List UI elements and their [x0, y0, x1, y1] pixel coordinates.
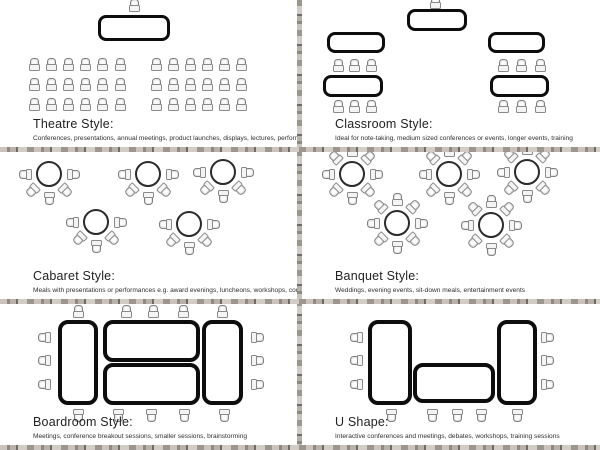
chair-icon — [251, 379, 264, 390]
chair-icon — [63, 98, 74, 111]
seating-styles-sheet: Theatre Style: Conferences, presentation… — [0, 0, 600, 450]
chair-icon — [73, 305, 84, 318]
chair-icon — [499, 200, 516, 217]
ushape-caption: U Shape: Interactive conferences and mee… — [335, 415, 560, 443]
chair-icon — [486, 195, 497, 208]
chair-icon — [333, 100, 344, 113]
chair-icon — [24, 182, 41, 199]
chair-icon — [91, 240, 102, 253]
chair-icon — [372, 198, 389, 215]
chair-icon — [516, 59, 527, 72]
chair-icon — [151, 78, 162, 91]
chair-icon — [424, 152, 441, 166]
chair-icon — [499, 233, 516, 250]
table — [103, 363, 200, 405]
round-table — [83, 209, 109, 235]
chair-icon — [347, 192, 358, 205]
chair-icon — [121, 305, 132, 318]
round-table — [210, 159, 236, 185]
chair-icon — [71, 230, 88, 247]
chair-icon — [322, 169, 335, 180]
chair-icon — [166, 169, 179, 180]
round-table — [176, 211, 202, 237]
panel-description: Ideal for note-taking, medium sized conf… — [335, 135, 573, 143]
chair-icon — [97, 78, 108, 91]
chair-icon — [516, 100, 527, 113]
chair-icon — [198, 180, 215, 197]
chair-icon — [392, 241, 403, 254]
chair-icon — [502, 180, 519, 197]
chair-icon — [522, 190, 533, 203]
chair-icon — [535, 59, 546, 72]
chair-icon — [80, 78, 91, 91]
chair-icon — [424, 182, 441, 199]
chair-icon — [405, 231, 422, 248]
chair-icon — [115, 98, 126, 111]
chair-icon — [444, 192, 455, 205]
chair-icon — [444, 152, 455, 157]
chair-icon — [366, 100, 377, 113]
chair-icon — [168, 78, 179, 91]
panel-theatre-style: Theatre Style: Conferences, presentation… — [0, 0, 297, 147]
chair-icon — [46, 98, 57, 111]
chair-icon — [156, 182, 173, 199]
chair-icon — [466, 233, 483, 250]
chair-icon — [415, 218, 428, 229]
chair-icon — [350, 355, 363, 366]
table — [488, 32, 545, 53]
chair-icon — [251, 332, 264, 343]
table — [413, 363, 495, 403]
panel-description: Conferences, presentations, annual meeti… — [33, 135, 297, 143]
chair-icon — [350, 332, 363, 343]
panel-cabaret-style: Cabaret Style: Meals with presentations … — [0, 152, 297, 299]
chair-icon — [184, 242, 195, 255]
chair-icon — [115, 58, 126, 71]
chair-icon — [123, 182, 140, 199]
chair-icon — [67, 169, 80, 180]
chair-icon — [197, 232, 214, 249]
chair-icon — [467, 169, 480, 180]
table — [497, 320, 537, 405]
chair-icon — [350, 379, 363, 390]
table — [323, 75, 383, 97]
chair-icon — [522, 152, 533, 155]
chair-icon — [236, 98, 247, 111]
chair-icon — [19, 169, 32, 180]
round-table — [36, 161, 62, 187]
chair-icon — [63, 78, 74, 91]
chair-icon — [367, 218, 380, 229]
panel-title: Classroom Style: — [335, 117, 573, 131]
chair-icon — [115, 78, 126, 91]
horizontal-divider-1 — [0, 147, 600, 152]
vertical-divider — [297, 0, 302, 450]
chair-icon — [168, 58, 179, 71]
chair-icon — [46, 78, 57, 91]
chair-icon — [535, 180, 552, 197]
chair-icon — [457, 152, 474, 166]
chair-icon — [498, 59, 509, 72]
chair-icon — [219, 58, 230, 71]
panel-title: Banquet Style: — [335, 269, 525, 283]
chair-icon — [193, 167, 206, 178]
cabaret-caption: Cabaret Style: Meals with presentations … — [33, 269, 297, 297]
chair-icon — [430, 0, 441, 9]
chair-icon — [457, 182, 474, 199]
theatre-caption: Theatre Style: Conferences, presentation… — [33, 117, 297, 145]
chair-icon — [29, 98, 40, 111]
horizontal-divider-2 — [0, 299, 600, 304]
panel-banquet-style: Banquet Style: Weddings, evening events,… — [302, 152, 600, 299]
round-table — [384, 210, 410, 236]
chair-icon — [347, 152, 358, 157]
panel-title: U Shape: — [335, 415, 560, 429]
chair-icon — [44, 192, 55, 205]
chair-icon — [231, 180, 248, 197]
chair-icon — [333, 59, 344, 72]
chair-icon — [185, 58, 196, 71]
panel-boardroom-style: Boardroom Style: Meetings, conference br… — [0, 304, 297, 445]
panel-title: Boardroom Style: — [33, 415, 247, 429]
panel-description: Weddings, evening events, sit-down meals… — [335, 287, 525, 295]
chair-icon — [419, 169, 432, 180]
chair-icon — [497, 167, 510, 178]
chair-icon — [207, 219, 220, 230]
panel-title: Theatre Style: — [33, 117, 297, 131]
chair-icon — [38, 332, 51, 343]
chair-icon — [541, 332, 554, 343]
chair-icon — [118, 169, 131, 180]
chair-icon — [185, 78, 196, 91]
chair-icon — [97, 98, 108, 111]
chair-icon — [461, 220, 474, 231]
chair-icon — [392, 193, 403, 206]
panel-description: Meetings, conference breakout sessions, … — [33, 433, 247, 441]
classroom-caption: Classroom Style: Ideal for note-taking, … — [335, 117, 573, 145]
chair-icon — [148, 305, 159, 318]
chair-icon — [349, 59, 360, 72]
chair-icon — [151, 58, 162, 71]
chair-icon — [202, 98, 213, 111]
banquet-caption: Banquet Style: Weddings, evening events,… — [335, 269, 525, 297]
chair-icon — [80, 58, 91, 71]
chair-icon — [66, 217, 79, 228]
round-table — [514, 159, 540, 185]
round-table — [436, 161, 462, 187]
chair-icon — [327, 152, 344, 166]
table — [202, 320, 243, 405]
chair-icon — [372, 231, 389, 248]
chair-icon — [405, 198, 422, 215]
chair-icon — [57, 182, 74, 199]
chair-icon — [466, 200, 483, 217]
panel-description: Interactive conferences and meetings, de… — [335, 433, 560, 441]
chair-icon — [217, 305, 228, 318]
chair-icon — [498, 100, 509, 113]
chair-icon — [143, 192, 154, 205]
chair-icon — [202, 58, 213, 71]
chair-icon — [535, 152, 552, 164]
table — [368, 320, 412, 405]
chair-icon — [236, 58, 247, 71]
table — [327, 32, 385, 53]
chair-icon — [168, 98, 179, 111]
chair-icon — [366, 59, 377, 72]
chair-icon — [545, 167, 558, 178]
chair-icon — [502, 152, 519, 164]
bottom-edge-strip — [0, 445, 600, 450]
table — [490, 75, 549, 97]
chair-icon — [349, 100, 360, 113]
chair-icon — [104, 230, 121, 247]
chair-icon — [29, 58, 40, 71]
round-table — [135, 161, 161, 187]
table — [58, 320, 98, 405]
chair-icon — [97, 58, 108, 71]
chair-icon — [29, 78, 40, 91]
chair-icon — [486, 243, 497, 256]
round-table — [339, 161, 365, 187]
table — [103, 320, 200, 362]
chair-icon — [114, 217, 127, 228]
table — [407, 9, 467, 31]
chair-icon — [236, 78, 247, 91]
chair-icon — [360, 182, 377, 199]
chair-icon — [219, 98, 230, 111]
chair-icon — [370, 169, 383, 180]
panel-u-shape: U Shape: Interactive conferences and mee… — [302, 304, 600, 445]
panel-description: Meals with presentations or performances… — [33, 287, 297, 295]
chair-icon — [360, 152, 377, 166]
chair-icon — [202, 78, 213, 91]
chair-icon — [535, 100, 546, 113]
chair-icon — [185, 98, 196, 111]
chair-icon — [38, 379, 51, 390]
chair-icon — [178, 305, 189, 318]
round-table — [478, 212, 504, 238]
chair-icon — [159, 219, 172, 230]
chair-icon — [218, 190, 229, 203]
chair-icon — [241, 167, 254, 178]
chair-icon — [80, 98, 91, 111]
chair-icon — [46, 58, 57, 71]
panel-title: Cabaret Style: — [33, 269, 297, 283]
boardroom-caption: Boardroom Style: Meetings, conference br… — [33, 415, 247, 443]
chair-icon — [151, 98, 162, 111]
chair-icon — [509, 220, 522, 231]
chair-icon — [219, 78, 230, 91]
chair-icon — [327, 182, 344, 199]
chair-icon — [541, 379, 554, 390]
chair-icon — [164, 232, 181, 249]
chair-icon — [541, 355, 554, 366]
chair-icon — [38, 355, 51, 366]
chair-icon — [63, 58, 74, 71]
table — [98, 15, 170, 41]
panel-classroom-style: Classroom Style: Ideal for note-taking, … — [302, 0, 600, 147]
chair-icon — [129, 0, 140, 12]
chair-icon — [251, 355, 264, 366]
